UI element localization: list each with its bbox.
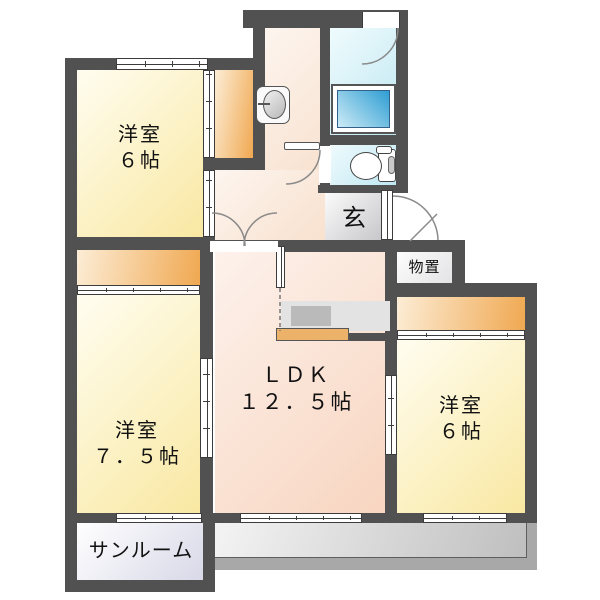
closet-west3 xyxy=(397,297,525,330)
toilet-lid-line xyxy=(376,146,392,154)
closet-west3-sliding-door xyxy=(397,330,525,340)
wall xyxy=(65,580,215,592)
storage-label: 物置 xyxy=(397,258,452,278)
toilet-door-leaf xyxy=(284,142,320,150)
closet-west1 xyxy=(215,70,253,158)
toilet-flush-handle xyxy=(388,156,395,174)
closet-west1-sliding-door xyxy=(203,70,215,158)
kitchen-sink xyxy=(291,306,331,326)
kitchen-counter-front xyxy=(276,328,349,341)
bathtub xyxy=(331,84,396,134)
wall xyxy=(390,283,537,297)
washbasin-faucet xyxy=(258,103,270,105)
refrigerator-space xyxy=(276,246,285,288)
room-west1-label: 洋室６帖 xyxy=(80,122,200,174)
door-ldk-west3-sliding xyxy=(385,375,397,455)
wall xyxy=(65,237,215,250)
room-west2-label: 洋室７．５帖 xyxy=(57,418,217,470)
porch-floor xyxy=(393,193,452,240)
hallway-floor-low xyxy=(215,170,330,241)
balcony-floor xyxy=(213,522,527,558)
toilet-icon xyxy=(348,146,400,186)
window-west1-top xyxy=(116,58,208,70)
wall xyxy=(65,58,77,592)
window-west3-balcony xyxy=(423,513,507,523)
closet-west2-sliding-door xyxy=(77,285,200,295)
window-west2-sunroom xyxy=(116,513,202,523)
genkan-label: 玄 xyxy=(325,203,385,234)
door-west1-entry xyxy=(203,170,215,237)
closet-west2 xyxy=(77,250,200,285)
window-ldk-balcony xyxy=(240,513,362,523)
room-west2-floor xyxy=(77,295,200,513)
sunroom-label: サンルーム xyxy=(78,538,204,564)
kitchen-counter-stub-wall xyxy=(349,333,397,341)
toilet-door-opening xyxy=(319,146,331,183)
ldk-double-door-opening xyxy=(210,241,278,252)
washbasin xyxy=(256,86,290,124)
wall xyxy=(320,135,408,145)
bathtub-water xyxy=(337,90,390,128)
room-west3-label: 洋室６帖 xyxy=(401,393,521,445)
wall xyxy=(203,513,215,580)
wall xyxy=(525,283,537,523)
floor-plan: 洋室６帖 洋室７．５帖 ＬＤＫ１２．５帖 洋室６帖 サンルーム 玄 物置 xyxy=(0,0,600,600)
ldk-label: ＬＤＫ１２．５帖 xyxy=(216,362,376,417)
wall xyxy=(203,158,265,170)
toilet-bowl xyxy=(350,152,382,180)
wall xyxy=(318,185,408,193)
bathroom-door-opening xyxy=(362,12,400,28)
